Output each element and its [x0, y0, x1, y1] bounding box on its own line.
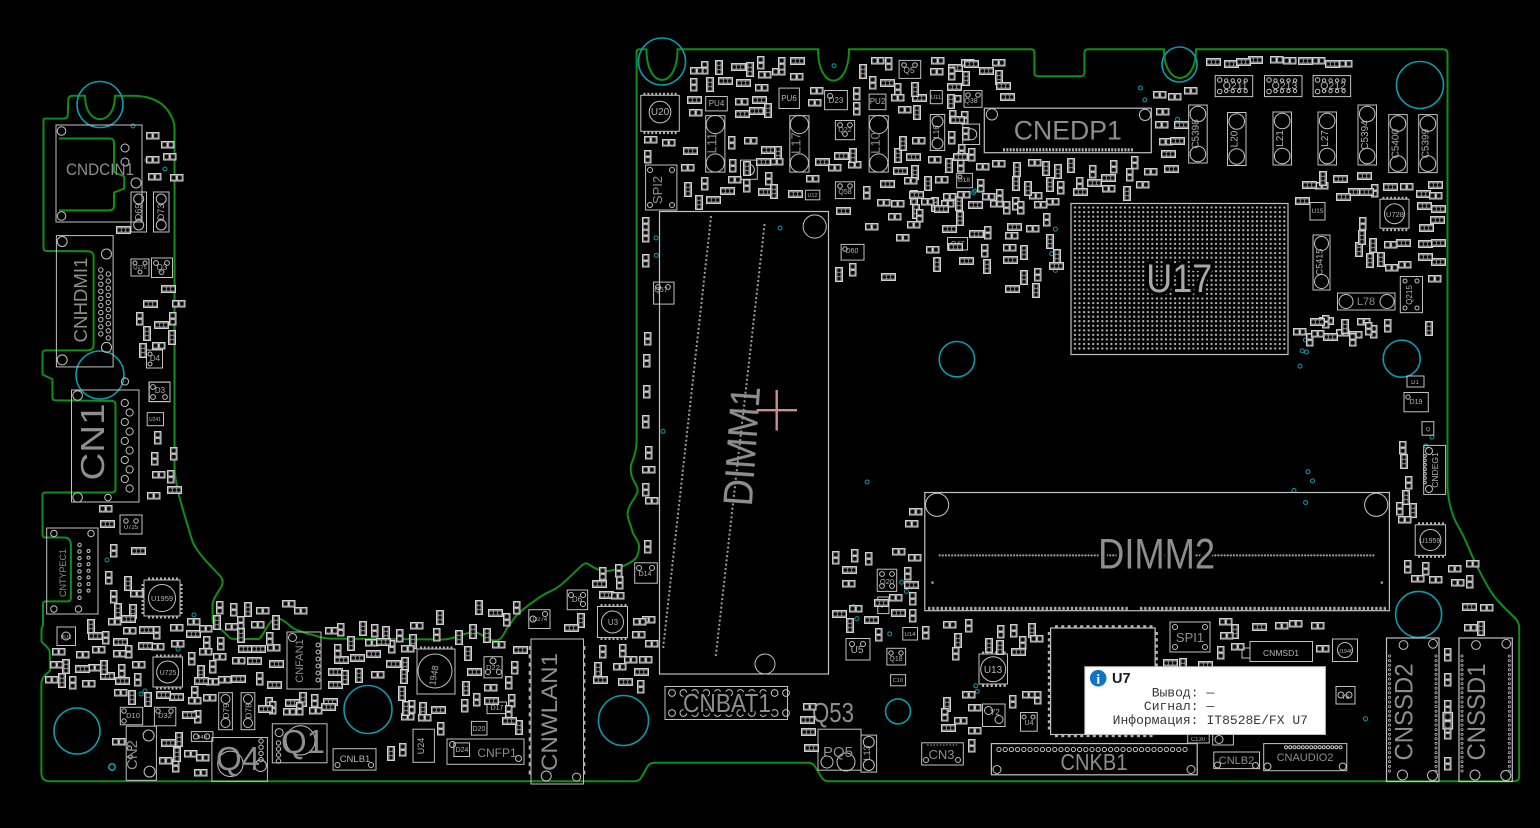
svg-text:U15: U15	[1312, 208, 1324, 215]
svg-text:Q211: Q211	[1223, 80, 1248, 92]
svg-text:CNFAN1: CNFAN1	[294, 639, 306, 682]
svg-text:L78: L78	[1357, 296, 1375, 308]
svg-text:Q3: Q3	[157, 263, 168, 272]
svg-text:L17: L17	[788, 132, 803, 154]
svg-text:Q57: Q57	[654, 287, 667, 294]
svg-text:CN3: CN3	[928, 747, 954, 762]
svg-text:CN2: CN2	[124, 740, 141, 770]
svg-text:CN1: CN1	[74, 404, 111, 481]
svg-text:CNDCIN1: CNDCIN1	[66, 161, 134, 179]
svg-text:CNHDMI1: CNHDMI1	[71, 258, 91, 343]
svg-text:U4: U4	[1025, 720, 1034, 727]
svg-text:Q53: Q53	[812, 697, 854, 728]
svg-text:Y2: Y2	[990, 708, 1000, 717]
svg-text:Q5: Q5	[903, 65, 915, 75]
svg-text:U728: U728	[1386, 210, 1404, 219]
svg-text:L13: L13	[862, 745, 872, 760]
svg-text:PQ5: PQ5	[823, 744, 853, 761]
svg-text:CNLB1: CNLB1	[340, 754, 371, 765]
svg-text:U725: U725	[160, 670, 177, 677]
svg-text:D32: D32	[158, 711, 172, 720]
svg-text:—: —	[1206, 685, 1215, 700]
svg-text:Q20: Q20	[880, 577, 894, 586]
svg-text:C5415: C5415	[1315, 249, 1325, 276]
svg-text:Q212: Q212	[1320, 80, 1346, 92]
svg-text:D24: D24	[456, 747, 469, 754]
svg-text:C5398: C5398	[1191, 119, 1202, 149]
svg-text:D78: D78	[244, 703, 254, 719]
svg-text:U1946: U1946	[1337, 649, 1353, 655]
svg-text:C130: C130	[1191, 737, 1206, 743]
svg-text:U1959: U1959	[1420, 538, 1441, 545]
svg-text:D4: D4	[150, 354, 161, 363]
svg-text:L20: L20	[1230, 130, 1241, 147]
svg-text:U725: U725	[124, 525, 139, 531]
svg-text:Q22: Q22	[838, 127, 851, 134]
svg-text:D274: D274	[533, 617, 548, 623]
svg-text:CNFP1: CNFP1	[477, 746, 517, 760]
svg-text:PU6: PU6	[781, 94, 797, 103]
svg-text:CNTYPEC1: CNTYPEC1	[58, 549, 68, 597]
svg-text:D60: D60	[846, 248, 859, 255]
svg-text:CNBAT1: CNBAT1	[683, 688, 771, 718]
svg-text:Информация:: Информация:	[1113, 713, 1199, 728]
svg-text:C10: C10	[893, 678, 903, 684]
svg-text:Вывод:: Вывод:	[1152, 685, 1199, 700]
svg-text:Q4: Q4	[216, 740, 260, 777]
svg-text:L10: L10	[868, 132, 883, 154]
svg-text:PU2: PU2	[870, 97, 886, 106]
svg-text:L11: L11	[704, 133, 719, 154]
svg-text:CNKB1: CNKB1	[1061, 749, 1128, 775]
svg-text:Q58: Q58	[838, 189, 851, 196]
svg-text:U11: U11	[931, 95, 942, 101]
svg-text:U17: U17	[1146, 257, 1212, 301]
svg-text:L21: L21	[1275, 130, 1286, 147]
svg-text:D69: D69	[134, 204, 144, 221]
svg-text:D79: D79	[221, 703, 231, 719]
svg-text:C5394: C5394	[1360, 120, 1371, 150]
svg-text:SPI1: SPI1	[1176, 630, 1204, 645]
svg-text:D18: D18	[958, 177, 970, 184]
svg-text:D20: D20	[473, 726, 486, 733]
svg-text:PU4: PU4	[709, 99, 725, 108]
svg-text:Y6: Y6	[1342, 694, 1350, 701]
svg-text:D22: D22	[486, 663, 500, 672]
svg-text:D3: D3	[155, 386, 166, 395]
svg-text:D19: D19	[1410, 399, 1423, 406]
svg-text:U14: U14	[904, 632, 916, 638]
svg-text:DIMM1: DIMM1	[714, 384, 769, 507]
svg-text:U13: U13	[984, 665, 1003, 676]
svg-text:D10: D10	[126, 711, 140, 720]
svg-text:CNAUDIO2: CNAUDIO2	[1277, 752, 1334, 764]
svg-text:C5400: C5400	[1391, 128, 1402, 158]
svg-text:Q275: Q275	[133, 265, 146, 271]
svg-text:Q1: Q1	[281, 723, 325, 760]
svg-text:U7: U7	[1112, 671, 1131, 687]
svg-text:Q215: Q215	[1405, 285, 1414, 305]
svg-text:D14: D14	[639, 571, 652, 578]
svg-text:i: i	[1096, 671, 1100, 686]
svg-text:DIMM2: DIMM2	[1098, 531, 1215, 579]
svg-text:D23: D23	[829, 96, 844, 105]
svg-text:L16: L16	[932, 125, 941, 139]
svg-text:946: 946	[197, 735, 208, 741]
svg-text:—: —	[1206, 699, 1215, 714]
svg-text:C5399: C5399	[1421, 128, 1432, 158]
svg-text:IT8528E/FX U7: IT8528E/FX U7	[1207, 713, 1308, 728]
svg-text:CNSSD2: CNSSD2	[1391, 664, 1419, 761]
svg-text:D17: D17	[491, 705, 504, 712]
svg-text:D73: D73	[156, 204, 166, 221]
svg-text:CNLB2: CNLB2	[1219, 755, 1254, 767]
svg-text:U241: U241	[149, 417, 161, 423]
svg-text:U20: U20	[651, 107, 670, 118]
svg-text:CNWLAN1: CNWLAN1	[537, 653, 562, 771]
svg-text:D1: D1	[1411, 380, 1419, 386]
svg-text:L27: L27	[1320, 130, 1331, 147]
svg-text:Сигнал:: Сигнал:	[1144, 699, 1199, 714]
svg-text:Q: Q	[1426, 427, 1431, 433]
svg-text:Q38: Q38	[964, 98, 977, 105]
svg-text:U1959: U1959	[151, 594, 173, 603]
svg-text:U12: U12	[807, 193, 817, 199]
svg-text:CNDEG1: CNDEG1	[1430, 452, 1440, 488]
svg-text:U24: U24	[416, 738, 426, 755]
svg-text:U5: U5	[851, 645, 864, 656]
svg-text:PU3: PU3	[61, 635, 72, 641]
svg-text:SPI2: SPI2	[650, 176, 665, 204]
svg-text:CNSSD1: CNSSD1	[1463, 664, 1491, 761]
svg-text:Q213: Q213	[1272, 80, 1298, 92]
svg-text:CNEDP1: CNEDP1	[1014, 116, 1122, 146]
svg-text:Q18: Q18	[889, 656, 902, 663]
svg-text:D6: D6	[572, 595, 583, 604]
svg-text:CNMSD1: CNMSD1	[1263, 648, 1299, 658]
svg-text:U3: U3	[608, 618, 619, 627]
